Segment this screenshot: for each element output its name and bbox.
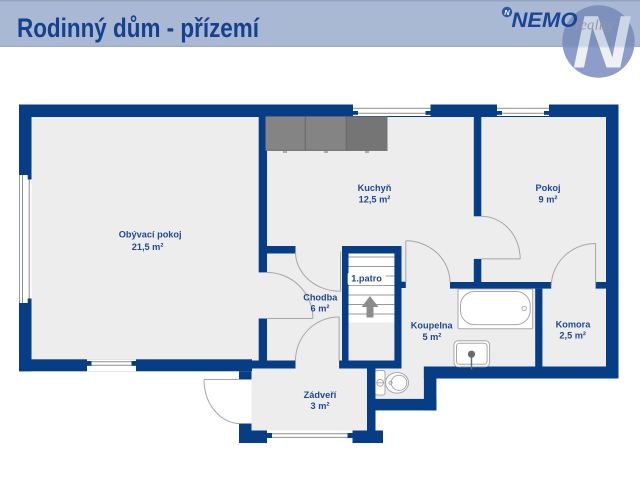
svg-text:Komora: Komora: [556, 319, 592, 329]
svg-text:Obývací pokoj: Obývací pokoj: [119, 230, 182, 240]
svg-text:Chodba: Chodba: [303, 292, 338, 302]
svg-text:NEMO: NEMO: [512, 8, 578, 32]
svg-text:Kuchyň: Kuchyň: [358, 183, 392, 193]
svg-text:N: N: [504, 8, 510, 17]
svg-text:21,5 m²: 21,5 m²: [132, 242, 164, 252]
svg-text:N: N: [573, 0, 632, 83]
svg-text:reality: reality: [575, 18, 614, 34]
svg-text:1.patro: 1.patro: [351, 274, 382, 284]
svg-text:6 m²: 6 m²: [311, 303, 330, 313]
svg-text:Zádveří: Zádveří: [304, 390, 337, 400]
svg-text:Rodinný dům - přízemí: Rodinný dům - přízemí: [17, 13, 260, 43]
svg-text:Pokoj: Pokoj: [535, 183, 560, 193]
svg-text:2,5 m²: 2,5 m²: [559, 331, 586, 341]
svg-text:12,5 m²: 12,5 m²: [359, 195, 391, 205]
svg-text:5 m²: 5 m²: [422, 332, 441, 342]
svg-text:Koupelna: Koupelna: [411, 321, 454, 331]
svg-text:9 m²: 9 m²: [539, 195, 558, 205]
svg-text:3 m²: 3 m²: [311, 401, 330, 411]
